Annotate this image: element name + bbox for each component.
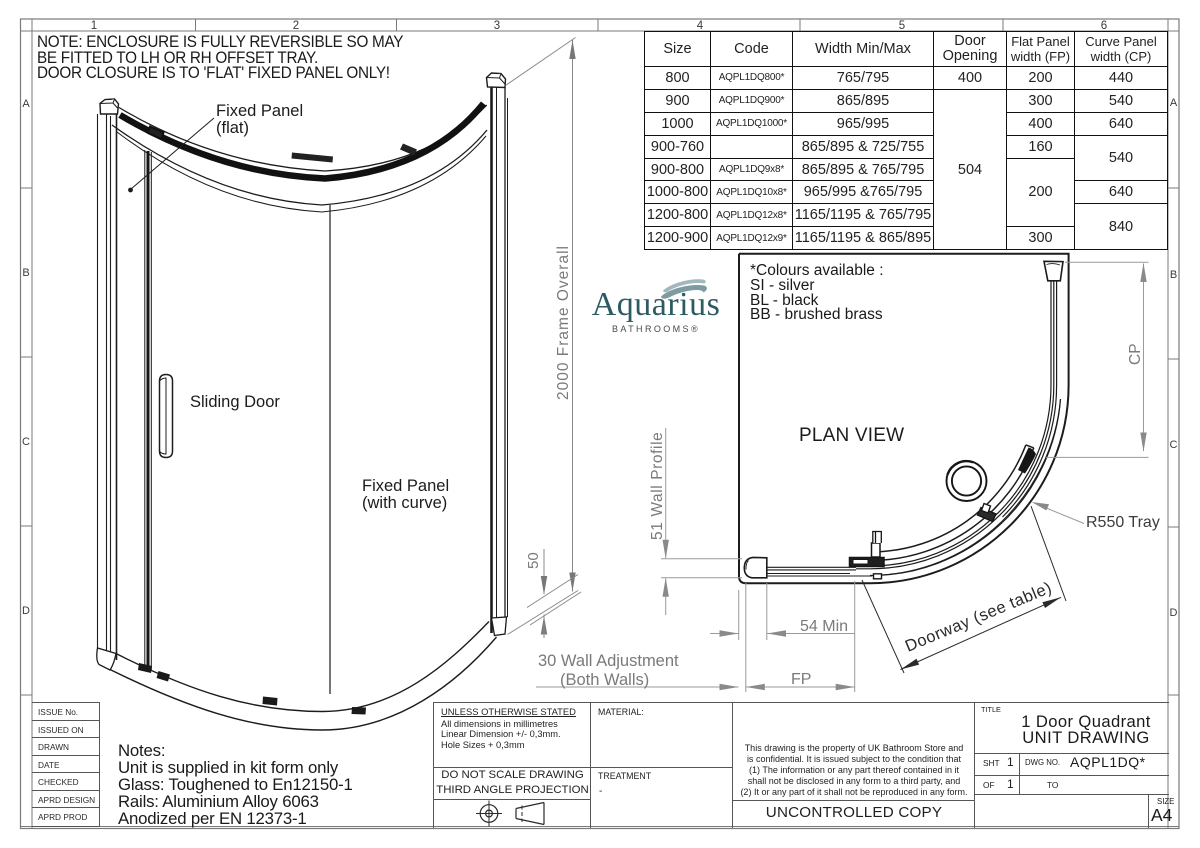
svg-text:3: 3 (494, 20, 500, 32)
svg-text:Aquarius: Aquarius (592, 286, 721, 323)
svg-text:(Both Walls): (Both Walls) (560, 671, 649, 689)
svg-text:B: B (1170, 269, 1177, 281)
svg-text:A: A (22, 98, 30, 110)
svg-text:1: 1 (91, 20, 97, 32)
svg-text:30 Wall Adjustment: 30 Wall Adjustment (538, 652, 679, 670)
svg-text:C: C (22, 436, 30, 448)
svg-text:50: 50 (525, 552, 542, 569)
svg-text:2000 Frame Overall: 2000 Frame Overall (555, 245, 572, 400)
svg-text:51 Wall Profile: 51 Wall Profile (649, 432, 666, 540)
svg-text:CP: CP (1127, 343, 1144, 365)
svg-text:BATHROOMS®: BATHROOMS® (612, 324, 700, 334)
svg-text:D: D (22, 605, 30, 617)
svg-text:D: D (1170, 607, 1178, 619)
svg-text:C: C (1170, 439, 1178, 451)
svg-text:FP: FP (791, 671, 811, 688)
svg-text:2: 2 (293, 20, 299, 32)
svg-text:A: A (1170, 97, 1178, 109)
svg-text:Doorway (see table): Doorway (see table) (903, 579, 1055, 656)
svg-text:54 Min: 54 Min (800, 618, 848, 635)
svg-text:B: B (22, 267, 29, 279)
